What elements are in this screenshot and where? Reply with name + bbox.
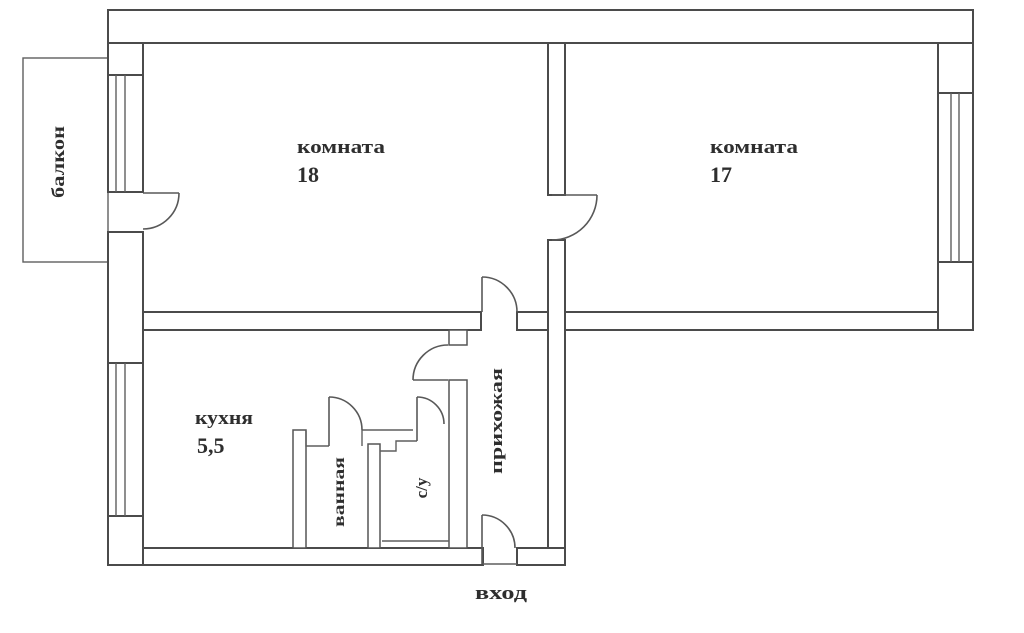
wall-bottom-entry-right [517,548,565,565]
wall-wc-top-step [380,441,417,451]
kitchen-label: кухня [195,408,253,429]
room-17-label: комната [710,137,799,158]
room-18-area: 18 [297,162,319,187]
wc-door-swing [417,397,444,424]
wall-rooms-divider-upper [548,43,565,195]
wall-bottom-rooms [517,312,973,330]
hallway-label: прихожая [487,368,506,474]
bathroom-label: ванная [331,457,348,527]
balcony-door-swing [143,193,179,229]
partitions [293,330,517,564]
wall-top [108,10,973,43]
windows [108,75,973,516]
wall-hallway-stub [449,330,467,345]
bathroom-door-swing [329,397,362,430]
floor-plan-page: комната 18 комната 17 кухня 5,5 балкон в… [0,0,1024,633]
wall-left-middle [108,232,143,363]
floor-plan-drawing: комната 18 комната 17 кухня 5,5 балкон в… [0,0,1024,633]
wall-right-bottom [938,262,973,330]
kitchen-area: 5,5 [197,433,225,458]
wall-room18-kitchen [143,312,481,330]
wall-bathroom-top-step [306,431,329,446]
balcony-label: балкон [48,126,68,198]
wall-rooms-divider-lower [548,240,565,548]
kitchen-door-swing [413,345,448,380]
hallway-room18-door-swing [482,277,517,312]
window-room17-frame [938,93,973,262]
rooms-door-swing [552,195,597,240]
wall-bathroom-left [293,430,306,548]
wall-hallway-left [449,380,467,548]
wall-bottom-left [108,548,483,565]
wall-bathroom-wc-divider [368,444,380,548]
entrance-label: вход [475,583,528,604]
wc-label: с/у [412,477,431,498]
room-18-label: комната [297,137,386,158]
labels: комната 18 комната 17 кухня 5,5 балкон в… [48,126,799,604]
room-17-area: 17 [710,162,732,187]
entrance-door-swing [482,515,515,548]
wall-left-bottom [108,516,143,565]
walls [108,10,973,565]
